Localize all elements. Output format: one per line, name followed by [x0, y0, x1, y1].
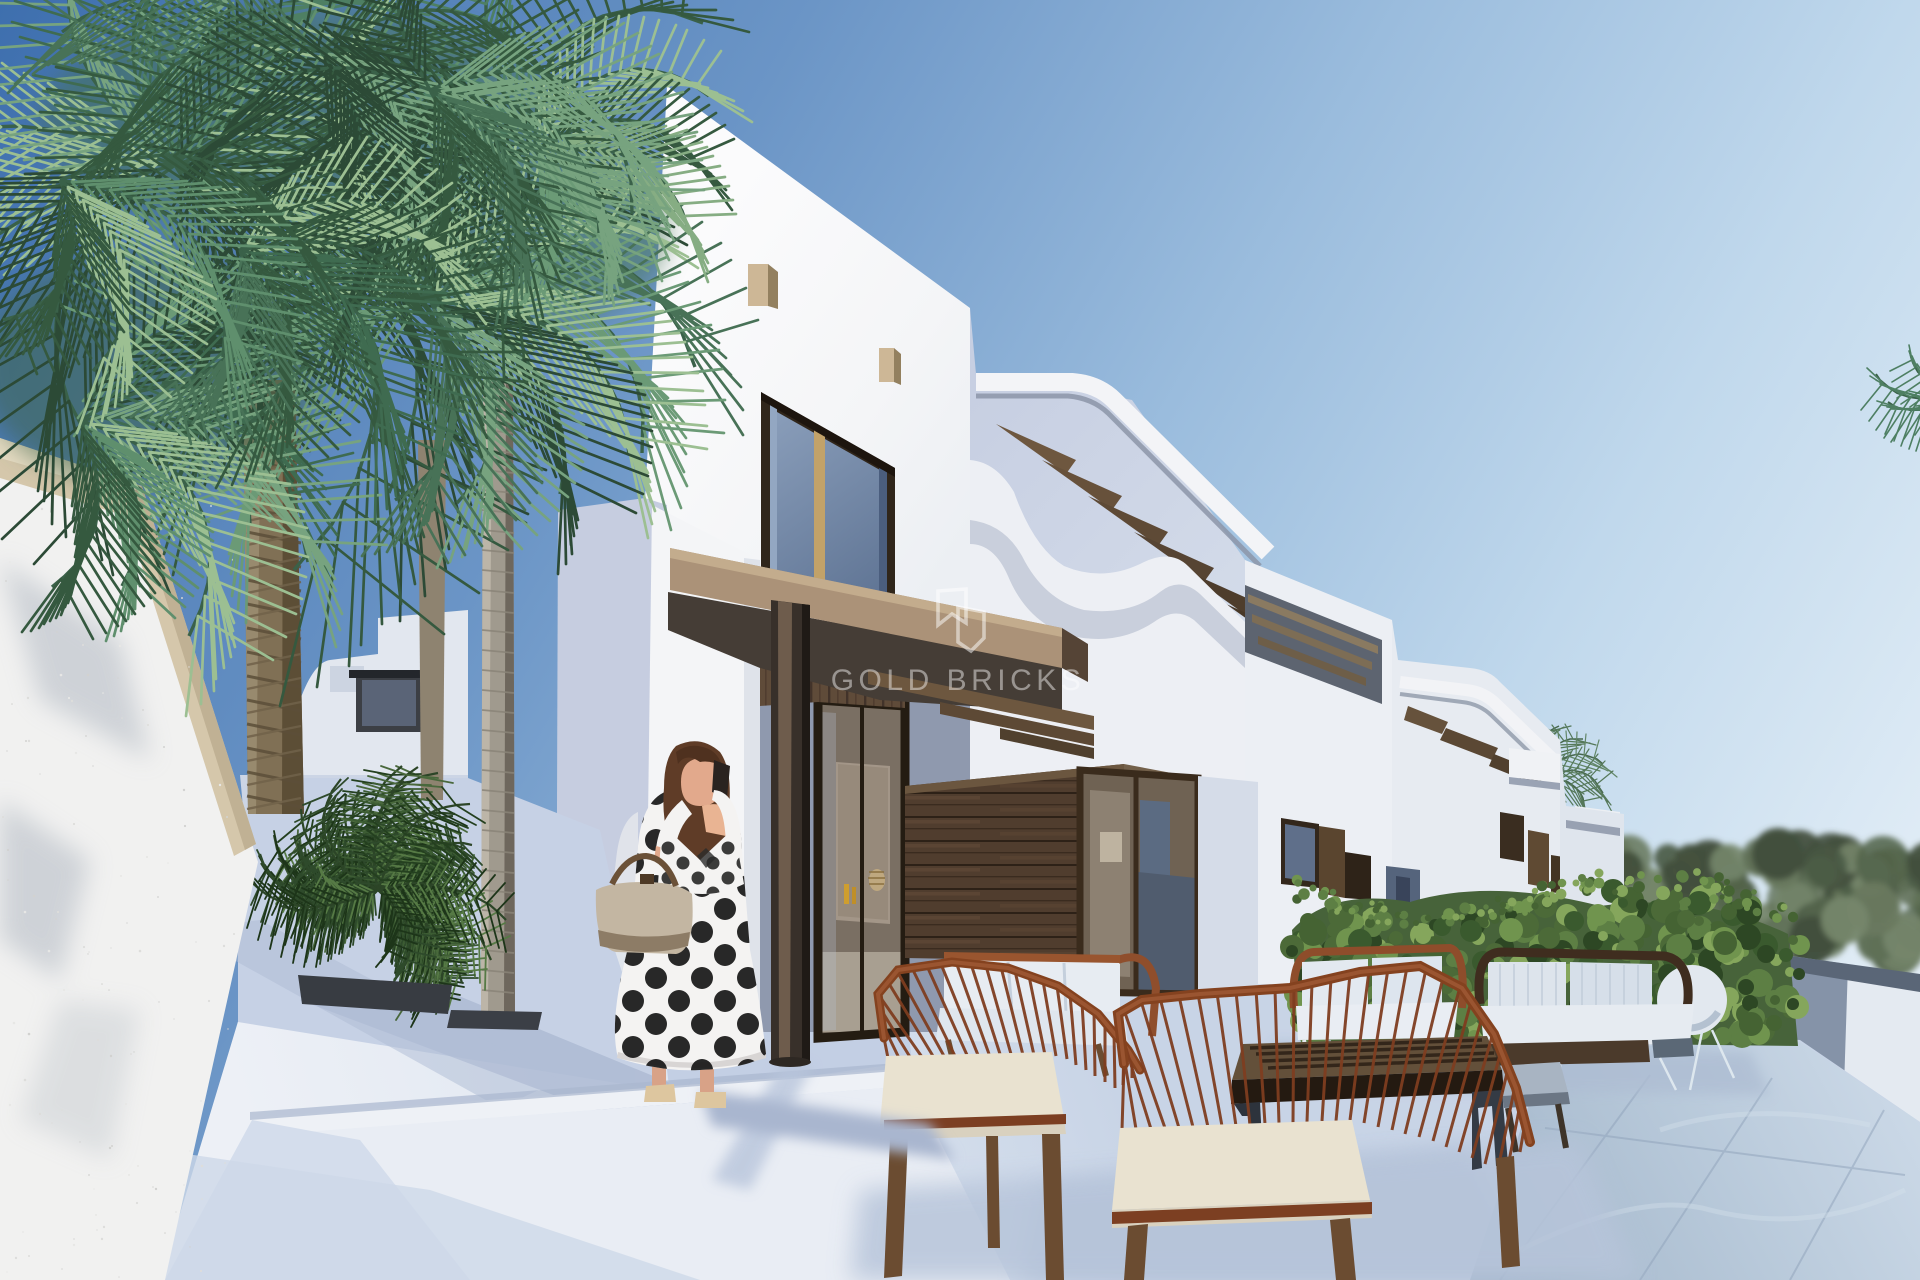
svg-text:GOLD BRICKS: GOLD BRICKS — [831, 664, 1086, 697]
